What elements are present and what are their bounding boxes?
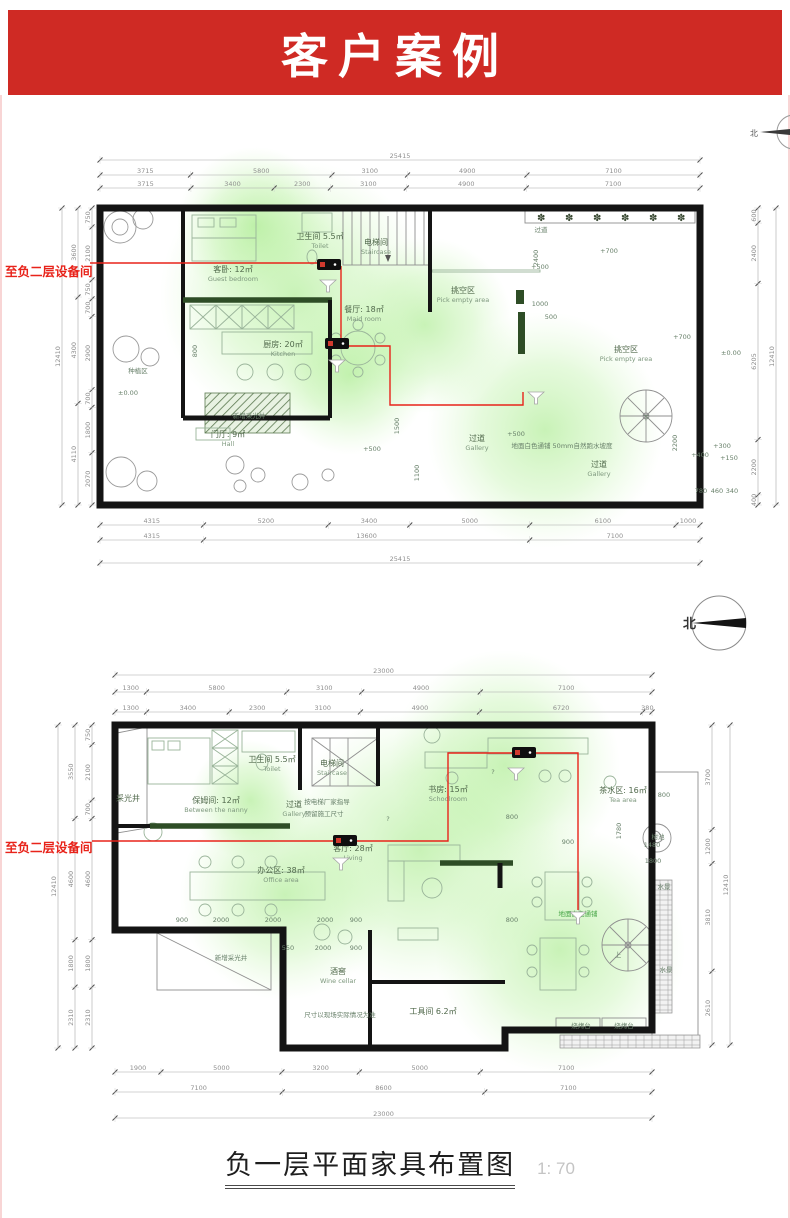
dim-value: 700 [84,803,92,815]
room-label-en: Toilet [310,242,328,250]
dim-value: 3400 [224,180,241,188]
dim-value: 2070 [84,471,92,488]
wire-device-icon [333,835,357,846]
dim-value: 12410 [54,346,62,367]
dim-value: 5000 [213,1064,230,1072]
annotation-label: ±0.00 [721,349,741,357]
drawing-scale: 1: 70 [537,1159,575,1179]
annotation-label: 按电梯厂家指导 [304,797,350,806]
compass-small-needle [760,129,790,135]
room-label-en: Toilet [262,765,280,773]
room-label-zh: 酒窖 [330,966,346,976]
annotation-label: 尺寸以现场实际情况为准 [304,1010,376,1019]
room-label-en: Gallery [282,810,305,818]
dim-value: 7100 [558,1064,575,1072]
annotation-label: ? [386,815,389,823]
room-label-zh: 挑空区 [451,285,475,295]
dim-value: 3200 [312,1064,329,1072]
dim-value: 5800 [253,167,270,175]
annotation-label: 1780 [615,823,623,840]
dim-value: 700 [84,392,92,404]
annotation-label: 新增采光井 [215,953,248,962]
dim-value: 5000 [412,1064,429,1072]
compass-small-north-label: 北 [750,129,758,138]
dim-value: 7100 [605,167,622,175]
annotation-label: +500 [507,430,525,438]
dim-value: 380 [641,704,653,712]
dim-value: 12410 [50,876,58,897]
dim-value: 4900 [412,704,429,712]
room-label-zh: 卫生间 5.5㎡ [296,231,343,241]
room-label-en: Guest bedroom [208,275,258,283]
room-label-zh: 过道 [591,459,607,469]
drawing-title: 负一层平面家具布置图 [225,1143,515,1189]
annotation-label: 2200 [671,435,679,452]
dim-value: 5000 [461,517,478,525]
annotation-label: 800 [506,813,518,821]
dim-value: 4315 [143,517,160,525]
dim-value: 3400 [361,517,378,525]
annotation-label: 800 [191,345,199,357]
annotation-label: 下 [643,414,650,422]
annotation-label: 550 [282,944,294,952]
annotation-label: 900 [176,916,188,924]
svg-text:✽: ✽ [677,213,685,224]
room-label-zh: 茶水区: 16㎡ [599,785,646,795]
dim-value: 3715 [137,180,154,188]
room-label-zh: 过道 [469,433,485,443]
dim-value: 2610 [704,1000,712,1017]
compass-north-label: 北 [683,617,696,632]
dim-value: 8600 [375,1084,392,1092]
annotation-label: 900 [562,838,574,846]
annotation-label: +150 [720,454,738,462]
compass-small: 北 [750,105,790,163]
room-label-en: Gallery [465,444,488,452]
dim-value: 1300 [123,704,140,712]
dim-value: 700 [84,301,92,313]
dim-value: 4600 [84,871,92,888]
equipment-room-label: 至负二层设备间 [5,264,93,279]
dim-value: 2300 [249,704,266,712]
dim-value: 2100 [84,245,92,262]
page: 客户案例 [0,0,790,1218]
room-label-en: Pick empty area [600,355,652,363]
annotation-label: 500 [545,313,557,321]
dim-value: 2310 [84,1009,92,1026]
floor-plan-2: 2300013005800310049007100130034002300310… [0,600,790,1140]
dim-value: 12410 [722,875,730,896]
annotation-label: ±0.00 [118,389,138,397]
dim-value: 7100 [560,1084,577,1092]
annotation-label: 2000 [213,916,230,924]
room-label-zh: 厨房: 20㎡ [263,339,302,349]
room-label-en: Hall [222,440,235,448]
room-label-zh: 电梯间 [320,758,344,768]
dim-value: 4600 [67,871,75,888]
svg-text:✽: ✽ [621,213,629,224]
annotation-label: 水景 [658,882,672,891]
annotation-label: 过道 [535,225,549,234]
dim-value: 2310 [67,1009,75,1026]
annotation-label: 新增采光井 [233,411,266,420]
dim-value: 3810 [704,909,712,926]
dim-value: 1800 [84,955,92,972]
dim-value: 600 [750,209,758,221]
dim-value: 400 [750,494,758,506]
dim-value: 7100 [190,1084,207,1092]
floor-plan-1: ✽✽ ✽✽ ✽✽ [0,120,790,600]
dim-value: 12410 [768,346,776,367]
annotation-label: +700 [600,247,618,255]
dim-value: 3100 [360,180,377,188]
dim-value: 3700 [704,769,712,786]
dim-value: 4315 [143,532,160,540]
annotation-label: 上 [615,950,622,959]
room-label-en: Tea area [608,796,636,804]
dim-value: 6720 [553,704,570,712]
dim-value: 4900 [458,180,475,188]
dim-value: 2400 [750,245,758,262]
room-label-en: Gallery [587,470,610,478]
dim-value: 2300 [294,180,311,188]
annotation-label: 1800 [645,857,662,865]
equipment-room-label: 至负二层设备间 [5,840,93,855]
dim-value: 3400 [180,704,197,712]
banner-title: 客户案例 [281,18,509,87]
dim-value: 2100 [84,764,92,781]
room-label-zh: 工具间 6.2㎡ [409,1007,456,1016]
svg-text:✽: ✽ [649,213,657,224]
annotation-label: +500 [363,445,381,453]
annotation-label: 1100 [413,465,421,482]
dim-value: 750 [84,729,92,741]
annotation-label: 800 [506,916,518,924]
room-label-en: Staircase [361,248,391,256]
dim-value: 5800 [208,684,225,692]
room-label-en: Maid room [347,315,381,323]
room-label-zh: 客卧: 12㎡ [213,264,252,274]
annotation-label: 种植区 [128,366,148,375]
dim-value: 3100 [361,167,378,175]
annotation-label: 340 [726,487,738,495]
annotation-label: 1500 [393,418,401,435]
dim-value: 3100 [316,684,333,692]
dim-value: 23000 [373,1110,394,1118]
dim-value: 3100 [314,704,331,712]
svg-text:✽: ✽ [565,213,573,224]
annotation-label: 900 [350,944,362,952]
dim-value: 1800 [67,955,75,972]
dim-value: 7100 [605,180,622,188]
banner: 客户案例 [8,10,782,95]
dim-value: 1300 [122,684,139,692]
wire-device-icon [512,747,536,758]
dim-value: 25415 [390,152,411,160]
dim-value: 1900 [130,1064,147,1072]
annotation-label: 460 [711,487,723,495]
annotation-label: ? [491,768,494,776]
svg-text:✽: ✽ [593,213,601,224]
dim-value: 13600 [356,532,377,540]
dim-value: 23000 [373,667,394,675]
wire-device-icon [325,338,349,349]
dim-value: 25415 [390,555,411,563]
dim-value: 3715 [137,167,154,175]
dim-value: 6205 [750,353,758,370]
svg-text:✽: ✽ [537,213,545,224]
annotation-label: 780 [695,487,707,495]
dim-value: 4900 [413,684,430,692]
room-label-en: Wine cellar [320,977,356,985]
room-label-zh: 办公区: 38㎡ [257,865,304,875]
dim-value: 2900 [84,345,92,362]
room-label-zh: 门厅: 9㎡ [211,429,245,439]
dim-value: 2200 [750,459,758,476]
annotation-label: 2000 [315,944,332,952]
room-label-en: Office area [263,876,299,884]
room-label-en: Between the nanny [184,806,248,814]
annotation-label: 烧烤台 [614,1021,634,1030]
dim-value: 5200 [258,517,275,525]
room-label-zh: 采光井 [116,793,140,803]
dim-value: 7100 [558,684,575,692]
annotation-label: 2400 [532,250,540,267]
annotation-label: 树池 [652,832,666,841]
compass: 北 [683,590,753,660]
dim-value: 750 [84,283,92,295]
room-label-zh: 保姆间: 12㎡ [192,795,239,805]
room-label-zh: 餐厅: 18㎡ [344,305,383,314]
dim-value: 1800 [84,422,92,439]
room-label-zh: 过道 [286,799,302,809]
dim-value: 3550 [67,763,75,780]
dim-value: 3600 [70,244,78,261]
dim-value: 4110 [70,446,78,463]
annotation-label: 烧烤台 [571,1021,591,1030]
annotation-label: 1000 [532,300,549,308]
dim-value: 1200 [704,838,712,855]
room-label-zh: 卫生间 5.5㎡ [248,754,295,764]
annotation-label: 2000 [265,916,282,924]
room-label-zh: 挑空区 [614,344,638,354]
annotation-label: 2000 [317,916,334,924]
room-label-en: Staircase [317,769,347,777]
dim-value: 6100 [595,517,612,525]
wire-device-icon [317,259,341,270]
dim-value: 1000 [680,517,697,525]
dim-value: 4900 [459,167,476,175]
dim-value: 4300 [70,342,78,359]
annotation-label: +300 [713,442,731,450]
room-label-en: Kitchen [271,350,295,358]
dim-value: 7100 [607,532,624,540]
annotation-label: 800 [658,791,670,799]
annotation-label: 900 [350,916,362,924]
annotation-label: 地面白色通铺 50mm自然跑水坡度 [511,441,613,450]
title-block: 负一层平面家具布置图 1: 70 [120,1143,680,1189]
annotation-label: +700 [673,333,691,341]
dim-value: 750 [84,211,92,223]
room-label-en: Pick empty area [437,296,489,304]
annotation-label: 水景 [660,965,674,974]
annotation-label: +400 [691,451,709,459]
annotation-label: 1480 [644,841,661,849]
annotation-label: 预留施工尺寸 [305,809,345,818]
room-label-zh: 电梯间 [364,237,388,247]
